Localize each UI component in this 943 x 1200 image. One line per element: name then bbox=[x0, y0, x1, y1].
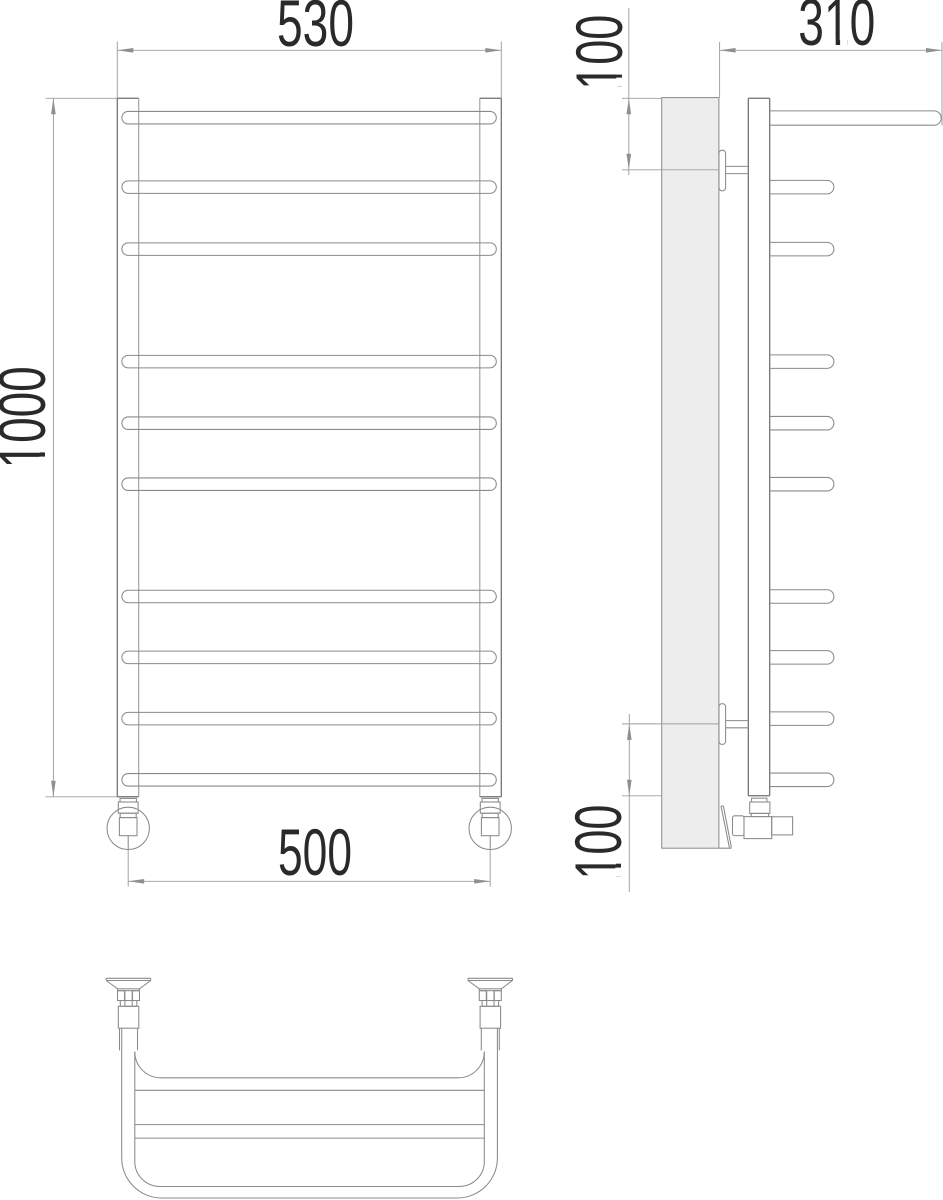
svg-text:1000: 1000 bbox=[0, 366, 60, 468]
svg-text:310: 310 bbox=[798, 0, 875, 60]
svg-text:100: 100 bbox=[562, 805, 636, 880]
svg-text:530: 530 bbox=[277, 0, 354, 61]
svg-text:100: 100 bbox=[563, 15, 637, 90]
svg-text:500: 500 bbox=[278, 816, 352, 890]
